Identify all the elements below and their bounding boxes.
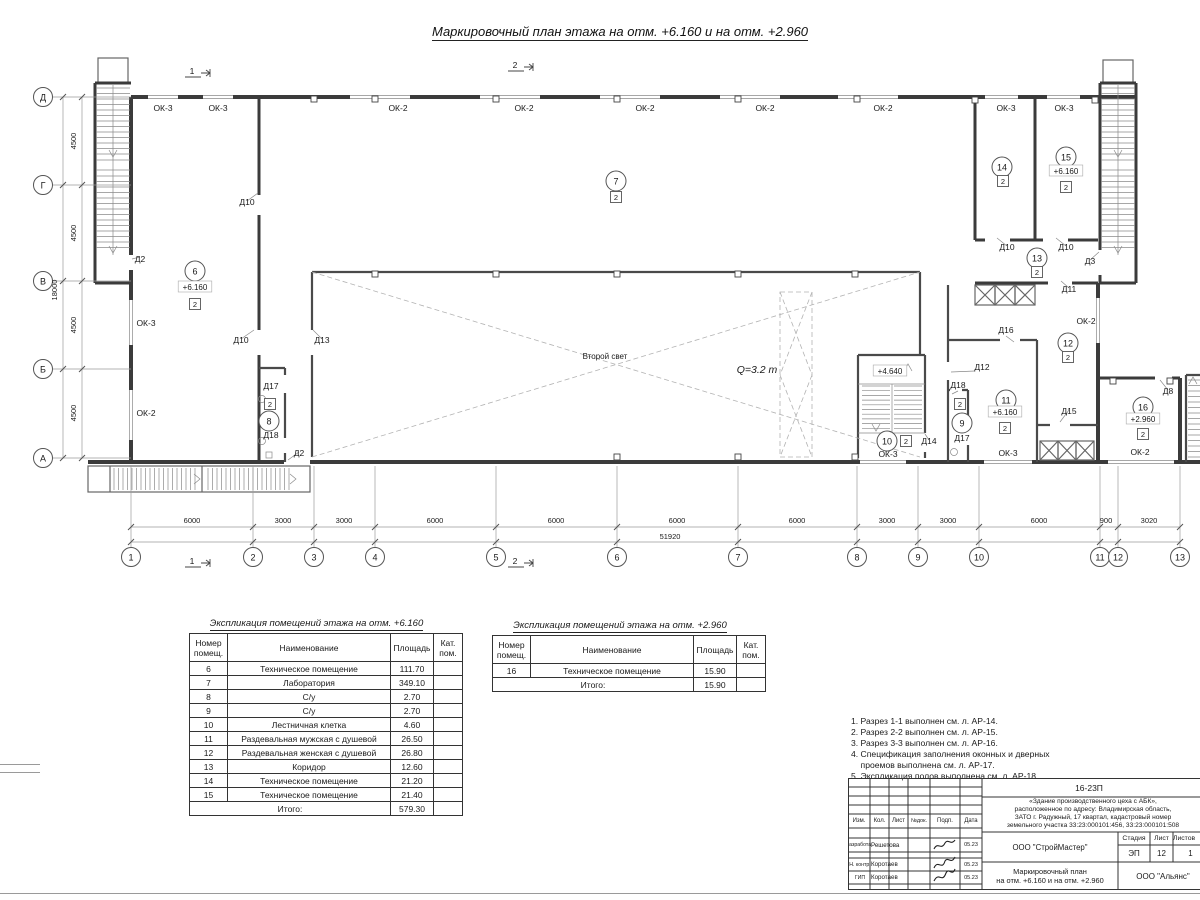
project-description: «Здание производственного цеха с АБК», р… <box>985 798 1200 831</box>
dim-label: 4500 <box>69 317 78 334</box>
listov-value: 1 <box>1173 845 1200 862</box>
table-header-row: Номер помещ.НаименованиеПлощадьКат. пом. <box>493 636 766 664</box>
window-tag: ОК-2 <box>514 103 533 113</box>
window-tag: ОК-2 <box>136 408 155 418</box>
table-cell: 9 <box>190 704 228 718</box>
door-tag: Д2 <box>135 254 146 264</box>
sign-name: Коротаев <box>871 859 911 870</box>
room-number: 9 <box>959 419 964 429</box>
dim-total-label: 18000 <box>50 280 59 301</box>
stage-header: Стадия <box>1118 833 1150 844</box>
sign-date: 05.23 <box>960 839 982 851</box>
window-tag: ОК-3 <box>878 449 897 459</box>
table-cell <box>434 676 463 690</box>
col-list: Лист <box>889 815 908 827</box>
column-header: Кат. пом. <box>434 634 463 662</box>
table-cell: 12.60 <box>391 760 434 774</box>
category-number: 2 <box>1035 268 1039 277</box>
note-line: 4. Спецификация заполнения оконных и две… <box>851 749 1050 760</box>
table-cell: 13 <box>190 760 228 774</box>
axis-number: 10 <box>974 553 984 563</box>
window-tag: ОК-2 <box>755 103 774 113</box>
column-header: Номер помещ. <box>190 634 228 662</box>
room-number: 11 <box>1001 396 1010 406</box>
drawing-sheet: Маркировочный план этажа на отм. +6.160 … <box>0 0 1200 900</box>
axis-letter: А <box>40 454 46 464</box>
dim-label: 6000 <box>1031 516 1048 525</box>
table-cell: 26.80 <box>391 746 434 760</box>
table-cell: Техническое помещение <box>228 774 391 788</box>
axis-number: 7 <box>735 553 740 563</box>
listov-header: Листов <box>1173 833 1200 844</box>
table-cell: 6 <box>190 662 228 676</box>
dim-total-label: 51920 <box>660 532 681 541</box>
window-tag: ОК-3 <box>1054 103 1073 113</box>
table-cell: 2.70 <box>391 690 434 704</box>
column-header: Наименование <box>228 634 391 662</box>
table-cell <box>434 802 463 816</box>
axis-number: 1 <box>128 553 133 563</box>
table-cell: 2.70 <box>391 704 434 718</box>
table-cell: С/у <box>228 690 391 704</box>
doc-title-line: на отм. +6.160 и на отм. +2.960 <box>984 876 1116 885</box>
table-cell <box>434 690 463 704</box>
description-line: ЗАТО г. Радужный, 17 квартал, кадастровы… <box>985 814 1200 822</box>
table-cell: 7 <box>190 676 228 690</box>
dim-label: 3000 <box>336 516 353 525</box>
dim-label: 4500 <box>69 405 78 422</box>
dim-label: 6000 <box>789 516 806 525</box>
room-number: 12 <box>1063 339 1073 349</box>
window-tag: ОК-2 <box>635 103 654 113</box>
table-cell <box>434 760 463 774</box>
table-cell: С/у <box>228 704 391 718</box>
sign-role: Разработал <box>849 839 871 851</box>
title-block: 16-23П «Здание производственного цеха с … <box>848 778 1200 890</box>
category-number: 2 <box>904 437 908 446</box>
dim-label: 3020 <box>1141 516 1158 525</box>
dim-label: 3000 <box>275 516 292 525</box>
room-number: 10 <box>882 437 892 447</box>
table-cell: Раздевальная женская с душевой <box>228 746 391 760</box>
table-cell: Раздевальная мужская с душевой <box>228 732 391 746</box>
room-number: 8 <box>266 417 271 427</box>
axis-letter: Д <box>40 93 46 103</box>
door-tag: Д10 <box>999 242 1014 252</box>
table-row: 13Коридор12.60 <box>190 760 463 774</box>
section-marker-number: 2 <box>513 556 518 566</box>
window-tag: ОК-2 <box>1130 447 1149 457</box>
table-row: 14Техническое помещение21.20 <box>190 774 463 788</box>
void-label: Второй свет <box>583 352 628 361</box>
col-ndok: №док. <box>908 815 930 827</box>
door-tag: Д8 <box>1163 386 1174 396</box>
section-marker-number: 2 <box>513 60 518 70</box>
table-row: 6Техническое помещение111.70 <box>190 662 463 676</box>
table-cell: Лестничная клетка <box>228 718 391 732</box>
table-cell <box>434 774 463 788</box>
dim-label: 4500 <box>69 133 78 150</box>
axis-letter: Г <box>41 181 46 191</box>
elevation-label: +4.640 <box>878 367 903 376</box>
table-row: 7Лаборатория349.10 <box>190 676 463 690</box>
door-tag: Д11 <box>1062 284 1077 294</box>
section-marker-number: 1 <box>190 66 195 76</box>
door-tag: Д16 <box>998 325 1013 335</box>
table-cell: Техническое помещение <box>228 662 391 676</box>
description-line: расположенное по адресу: Владимирская об… <box>985 806 1200 814</box>
door-tag: Д10 <box>233 335 248 345</box>
door-tag: Д10 <box>239 197 254 207</box>
doc-title: Маркировочный план на отм. +6.160 и на о… <box>984 863 1116 893</box>
door-tag: Д18 <box>950 380 965 390</box>
total-value: 15.90 <box>694 678 737 692</box>
sign-name: Коротаев <box>871 872 911 883</box>
window-tag: ОК-3 <box>153 103 172 113</box>
window-tag: ОК-3 <box>996 103 1015 113</box>
notes-list: 1. Разрез 1-1 выполнен см. л. АР-14.2. Р… <box>851 716 1050 782</box>
table-cell: Лаборатория <box>228 676 391 690</box>
axis-number: 6 <box>614 553 619 563</box>
door-tag: Д10 <box>1058 242 1073 252</box>
dim-label: 6000 <box>669 516 686 525</box>
axis-number: 3 <box>311 553 316 563</box>
axis-number: 2 <box>250 553 255 563</box>
table-cell: 15.90 <box>694 664 737 678</box>
table-cell <box>737 664 766 678</box>
room-number: 16 <box>1138 403 1148 413</box>
table-cell <box>434 746 463 760</box>
note-line: 1. Разрез 1-1 выполнен см. л. АР-14. <box>851 716 1050 727</box>
category-number: 2 <box>268 400 272 409</box>
window-tag: ОК-3 <box>998 448 1017 458</box>
note-line: проемов выполнена см. л. АР-17. <box>851 760 1050 771</box>
table-cell: 10 <box>190 718 228 732</box>
sign-role: Н. контр. <box>849 859 871 870</box>
door-tag: Д17 <box>954 433 969 443</box>
table-cell: 15 <box>190 788 228 802</box>
axis-number: 5 <box>493 553 498 563</box>
door-tag: Д15 <box>1061 406 1076 416</box>
elevation-label: +6.160 <box>1054 167 1079 176</box>
table-cell <box>434 788 463 802</box>
door-tag: Д12 <box>974 362 989 372</box>
table-cell: 14 <box>190 774 228 788</box>
category-number: 2 <box>1064 183 1068 192</box>
sign-date: 05.23 <box>960 859 982 870</box>
crane-capacity-label: Q=3.2 т <box>737 364 778 376</box>
category-number: 2 <box>1003 424 1007 433</box>
column-header: Номер помещ. <box>493 636 531 664</box>
col-podp: Подп. <box>930 815 960 827</box>
table-row: 12Раздевальная женская с душевой26.80 <box>190 746 463 760</box>
table-cell: 4.60 <box>391 718 434 732</box>
note-line: 2. Разрез 2-2 выполнен см. л. АР-15. <box>851 727 1050 738</box>
col-izm: Изм. <box>848 815 870 827</box>
category-number: 2 <box>193 300 197 309</box>
frame-mark <box>0 772 40 773</box>
axis-number: 8 <box>854 553 859 563</box>
door-tag: Д18 <box>263 430 278 440</box>
table-cell <box>434 704 463 718</box>
col-data: Дата <box>960 815 982 827</box>
axis-number: 13 <box>1175 553 1185 563</box>
table-cell: Техническое помещение <box>531 664 694 678</box>
sign-date: 05.23 <box>960 872 982 883</box>
list-value: 12 <box>1150 845 1173 862</box>
table-cell: 349.10 <box>391 676 434 690</box>
total-label: Итого: <box>190 802 391 816</box>
table-cell: 11 <box>190 732 228 746</box>
table-row: 8С/у2.70 <box>190 690 463 704</box>
window-tag: ОК-2 <box>873 103 892 113</box>
column-header: Кат. пом. <box>737 636 766 664</box>
list-header: Лист <box>1150 833 1173 844</box>
room-number: 6 <box>192 267 197 277</box>
table-cell <box>434 718 463 732</box>
table-cell: 21.20 <box>391 774 434 788</box>
table-cell: 8 <box>190 690 228 704</box>
dim-label: 3000 <box>940 516 957 525</box>
description-line: земельного участка 33:23:000101:456, 33:… <box>985 822 1200 830</box>
room-number: 13 <box>1032 254 1042 264</box>
axis-number: 11 <box>1095 553 1104 563</box>
col-kol: Кол. <box>870 815 889 827</box>
table-header-row: Номер помещ.НаименованиеПлощадьКат. пом. <box>190 634 463 662</box>
total-label: Итого: <box>493 678 694 692</box>
description-line: «Здание производственного цеха с АБК», <box>985 798 1200 806</box>
dim-label: 6000 <box>548 516 565 525</box>
section-marker-number: 1 <box>190 556 195 566</box>
explication-table-2960: Номер помещ.НаименованиеПлощадьКат. пом.… <box>492 635 766 692</box>
dim-label: 6000 <box>184 516 201 525</box>
total-value: 579.30 <box>391 802 434 816</box>
table2-title: Экспликация помещений этажа на отм. +2.9… <box>492 620 748 631</box>
table-cell: 21.40 <box>391 788 434 802</box>
table-row: 16Техническое помещение15.90 <box>493 664 766 678</box>
category-number: 2 <box>958 400 962 409</box>
frame-mark <box>0 764 40 765</box>
door-tag: Д17 <box>263 381 278 391</box>
door-tag: Д2 <box>294 448 305 458</box>
axis-letter: В <box>40 277 46 287</box>
room-number: 14 <box>997 163 1007 173</box>
elevation-label: +2.960 <box>1131 415 1156 424</box>
dim-label: 3000 <box>879 516 896 525</box>
table-cell: 26.50 <box>391 732 434 746</box>
table-row: 10Лестничная клетка4.60 <box>190 718 463 732</box>
plan-generated-text: 12345678910111213ДГВБА600030003000600060… <box>34 60 1190 567</box>
doc-code: 16-23П <box>984 779 1194 796</box>
table-row: 11Раздевальная мужская с душевой26.50 <box>190 732 463 746</box>
floor-plan: 12345678910111213ДГВБА600030003000600060… <box>0 0 1200 590</box>
dim-label: 4500 <box>69 225 78 242</box>
column-header: Площадь <box>391 634 434 662</box>
table-cell: Коридор <box>228 760 391 774</box>
table-cell <box>434 732 463 746</box>
org-customer: ООО "Альянс" <box>1118 862 1200 890</box>
table-cell: 16 <box>493 664 531 678</box>
table-row: 9С/у2.70 <box>190 704 463 718</box>
note-line: 3. Разрез 3-3 выполнен см. л. АР-16. <box>851 738 1050 749</box>
category-number: 2 <box>1001 177 1005 186</box>
window-tag: ОК-3 <box>208 103 227 113</box>
axis-number: 9 <box>915 553 920 563</box>
window-tag: ОК-3 <box>136 318 155 328</box>
sign-role: ГИП <box>849 872 871 883</box>
table-total-row: Итого:15.90 <box>493 678 766 692</box>
window-tag: ОК-2 <box>388 103 407 113</box>
table-cell: 12 <box>190 746 228 760</box>
sign-name: Решетова <box>871 839 911 851</box>
dim-label: 6000 <box>427 516 444 525</box>
door-tag: Д3 <box>1085 256 1096 266</box>
elevation-label: +6.160 <box>993 408 1018 417</box>
axis-number: 4 <box>372 553 377 563</box>
category-number: 2 <box>614 193 618 202</box>
category-number: 2 <box>1066 353 1070 362</box>
column-header: Наименование <box>531 636 694 664</box>
signature <box>934 840 955 881</box>
elevation-label: +6.160 <box>183 283 208 292</box>
dim-label: 900 <box>1100 516 1113 525</box>
room-number: 7 <box>613 177 618 187</box>
column-header: Площадь <box>694 636 737 664</box>
doc-title-line: Маркировочный план <box>984 867 1116 876</box>
table-cell: 111.70 <box>391 662 434 676</box>
room-number: 15 <box>1061 153 1071 163</box>
axis-letter: Б <box>40 365 46 375</box>
plan-generated-layout <box>53 85 1200 547</box>
table-cell: Техническое помещение <box>228 788 391 802</box>
table-row: 15Техническое помещение21.40 <box>190 788 463 802</box>
org-designer: ООО "СтройМастер" <box>984 834 1116 860</box>
table-cell <box>434 662 463 676</box>
category-number: 2 <box>1141 430 1145 439</box>
stage-value: ЭП <box>1118 845 1150 862</box>
table1-title: Экспликация помещений этажа на отм. +6.1… <box>189 618 444 629</box>
explication-table-6160: Номер помещ.НаименованиеПлощадьКат. пом.… <box>189 633 463 816</box>
table-cell <box>737 678 766 692</box>
table-total-row: Итого:579.30 <box>190 802 463 816</box>
door-tag: Д14 <box>921 436 936 446</box>
window-tag: ОК-2 <box>1076 316 1095 326</box>
door-tag: Д13 <box>314 335 329 345</box>
frame-bottom-line <box>0 893 1200 894</box>
axis-number: 12 <box>1113 553 1123 563</box>
